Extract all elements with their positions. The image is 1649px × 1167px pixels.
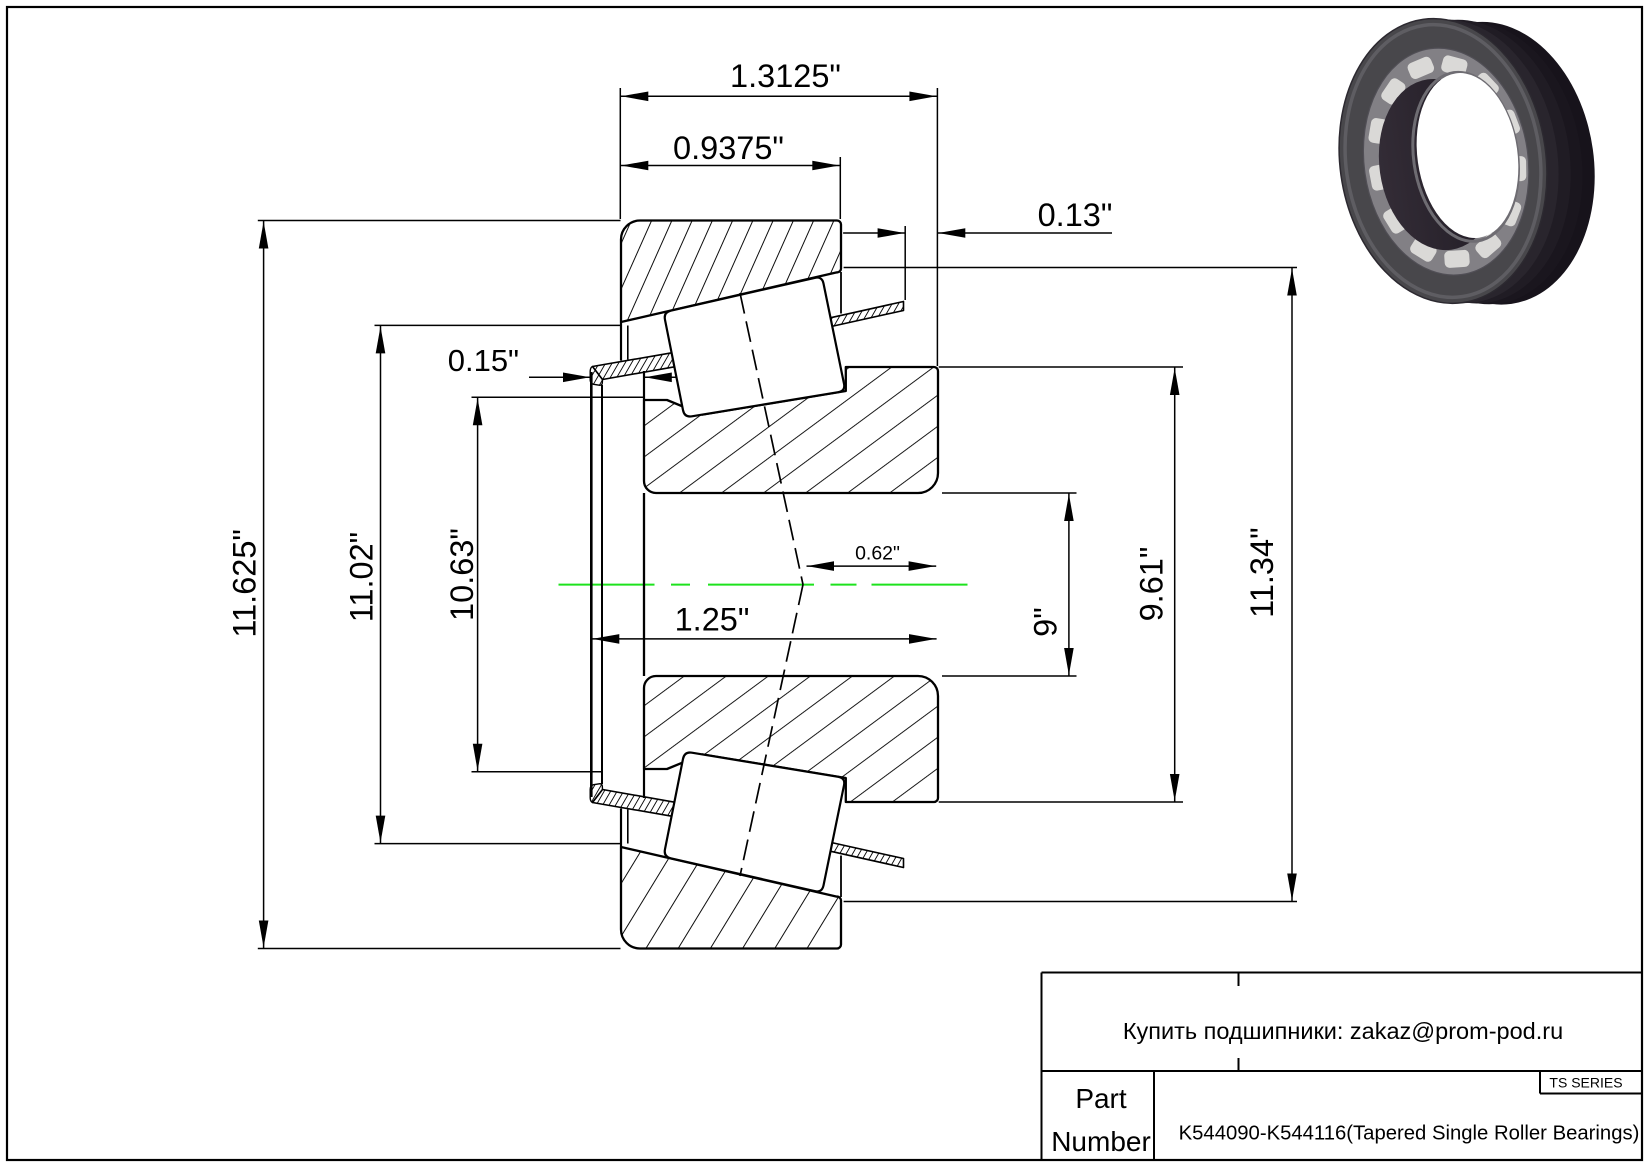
svg-text:11.34": 11.34": [1244, 527, 1280, 617]
svg-text:K544090-K544116(Tapered Single: K544090-K544116(Tapered Single Roller Be…: [1179, 1123, 1640, 1145]
svg-text:TS SERIES: TS SERIES: [1549, 1075, 1622, 1091]
svg-text:0.62": 0.62": [855, 543, 900, 565]
svg-text:Number: Number: [1051, 1126, 1151, 1157]
svg-text:Купить подшипники: zakaz@prom-: Купить подшипники: zakaz@prom-pod.ru: [1123, 1018, 1563, 1044]
svg-text:11.625": 11.625": [227, 529, 263, 638]
svg-text:9": 9": [1028, 607, 1064, 637]
svg-text:0.9375": 0.9375": [673, 130, 784, 166]
svg-text:1.3125": 1.3125": [730, 58, 841, 94]
svg-text:9.61": 9.61": [1134, 547, 1170, 622]
svg-text:11.02": 11.02": [344, 532, 380, 622]
svg-text:0.15": 0.15": [448, 343, 519, 378]
svg-text:Part: Part: [1075, 1083, 1127, 1114]
svg-text:0.13": 0.13": [1038, 197, 1113, 233]
svg-text:1.25": 1.25": [675, 601, 750, 637]
svg-text:10.63": 10.63": [444, 528, 480, 621]
